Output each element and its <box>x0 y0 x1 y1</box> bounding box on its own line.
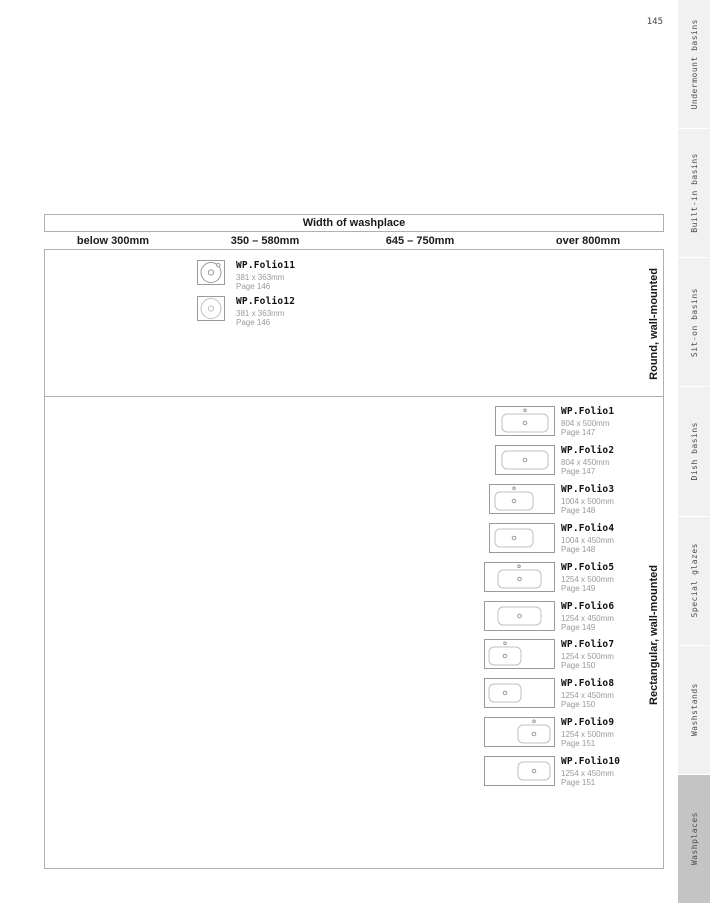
product-size: 804 x 500mm <box>561 419 614 429</box>
product-name: WP.Folio7 <box>561 639 614 651</box>
product-name: WP.Folio9 <box>561 717 614 729</box>
column-header: 350 – 580mm <box>231 235 300 247</box>
round-basin-with-tap-icon <box>197 260 225 290</box>
product-size: 1254 x 450mm <box>561 691 614 701</box>
product-info: WP.Folio61254 x 450mmPage 149 <box>561 601 614 633</box>
product-info: WP.Folio81254 x 450mmPage 150 <box>561 678 614 710</box>
column-header: 645 – 750mm <box>386 235 455 247</box>
product-name: WP.Folio4 <box>561 523 614 535</box>
product-name: WP.Folio2 <box>561 445 614 457</box>
tab-sit-on-basins[interactable]: Sit-on basins <box>678 258 710 387</box>
rect-basin-center-tap-icon <box>495 406 555 441</box>
tab-washplaces[interactable]: Washplaces <box>678 775 710 903</box>
product-info: WP.Folio41004 x 450mmPage 148 <box>561 523 614 555</box>
product-page-ref: Page 149 <box>561 584 614 594</box>
product-name: WP.Folio1 <box>561 406 614 418</box>
tab-label: Dish basins <box>690 422 699 480</box>
section-round-wall-mounted: Round, wall-mounted WP.Folio11381 x 363m… <box>44 249 664 397</box>
washplace-width-table: Width of washplace below 300mm350 – 580m… <box>44 214 664 869</box>
wide-basin-left-icon <box>484 678 555 713</box>
tab-dish-basins[interactable]: Dish basins <box>678 387 710 516</box>
product-page-ref: Page 146 <box>236 318 295 328</box>
tab-special-glazes[interactable]: Special glazes <box>678 517 710 646</box>
catalog-page: 145 Width of washplace below 300mm350 – … <box>0 0 710 903</box>
product-name: WP.Folio11 <box>236 260 295 272</box>
tab-label: Washplaces <box>690 812 699 865</box>
product-info: WP.Folio101254 x 450mmPage 151 <box>561 756 620 788</box>
product-size: 1254 x 500mm <box>561 652 614 662</box>
tab-label: Special glazes <box>690 543 699 617</box>
wide-basin-right-icon <box>484 756 555 791</box>
column-header-row: below 300mm350 – 580mm645 – 750mmover 80… <box>44 232 664 249</box>
tab-washstands[interactable]: Washstands <box>678 646 710 775</box>
product-size: 1254 x 500mm <box>561 575 614 585</box>
section-label-round: Round, wall-mounted <box>648 268 660 380</box>
product-info: WP.Folio12381 x 363mmPage 146 <box>236 296 295 328</box>
product-size: 1254 x 450mm <box>561 769 620 779</box>
page-number: 145 <box>647 17 663 27</box>
tab-label: Built-in basins <box>690 153 699 233</box>
wide-basin-right-tap-icon <box>484 717 555 752</box>
product-info: WP.Folio91254 x 500mmPage 151 <box>561 717 614 749</box>
wide-basin-center-icon <box>484 601 555 636</box>
product-name: WP.Folio12 <box>236 296 295 308</box>
tab-label: Undermount basins <box>690 19 699 109</box>
product-name: WP.Folio6 <box>561 601 614 613</box>
product-page-ref: Page 149 <box>561 623 614 633</box>
section-rectangular-wall-mounted: Rectangular, wall-mounted WP.Folio1804 x… <box>44 396 664 869</box>
product-name: WP.Folio10 <box>561 756 620 768</box>
product-size: 1004 x 450mm <box>561 536 614 546</box>
tab-undermount-basins[interactable]: Undermount basins <box>678 0 710 129</box>
column-header: over 800mm <box>556 235 620 247</box>
product-page-ref: Page 147 <box>561 428 614 438</box>
product-page-ref: Page 150 <box>561 661 614 671</box>
product-info: WP.Folio2804 x 450mmPage 147 <box>561 445 614 477</box>
category-tab-bar: Undermount basinsBuilt-in basinsSit-on b… <box>678 0 710 903</box>
product-page-ref: Page 148 <box>561 545 614 555</box>
product-size: 381 x 363mm <box>236 273 295 283</box>
product-info: WP.Folio51254 x 500mmPage 149 <box>561 562 614 594</box>
wide-basin-center-tap-icon <box>484 562 555 597</box>
tab-label: Washstands <box>690 683 699 736</box>
wide-basin-left-tap-icon <box>484 639 555 674</box>
product-page-ref: Page 146 <box>236 282 295 292</box>
column-header: below 300mm <box>77 235 149 247</box>
rect-basin-left-icon <box>489 523 555 558</box>
product-size: 1004 x 500mm <box>561 497 614 507</box>
product-page-ref: Page 151 <box>561 739 614 749</box>
product-size: 381 x 363mm <box>236 309 295 319</box>
product-page-ref: Page 150 <box>561 700 614 710</box>
tab-built-in-basins[interactable]: Built-in basins <box>678 129 710 258</box>
product-info: WP.Folio31004 x 500mmPage 148 <box>561 484 614 516</box>
product-name: WP.Folio8 <box>561 678 614 690</box>
product-info: WP.Folio1804 x 500mmPage 147 <box>561 406 614 438</box>
product-page-ref: Page 151 <box>561 778 620 788</box>
product-size: 1254 x 500mm <box>561 730 614 740</box>
table-title: Width of washplace <box>44 214 664 232</box>
product-name: WP.Folio5 <box>561 562 614 574</box>
product-page-ref: Page 147 <box>561 467 614 477</box>
tab-label: Sit-on basins <box>690 288 699 357</box>
product-page-ref: Page 148 <box>561 506 614 516</box>
round-basin-icon <box>197 296 225 326</box>
product-info: WP.Folio71254 x 500mmPage 150 <box>561 639 614 671</box>
rect-basin-left-tap-icon <box>489 484 555 519</box>
section-label-rectangular: Rectangular, wall-mounted <box>648 565 660 705</box>
product-size: 804 x 450mm <box>561 458 614 468</box>
product-name: WP.Folio3 <box>561 484 614 496</box>
product-size: 1254 x 450mm <box>561 614 614 624</box>
rect-basin-center-icon <box>495 445 555 480</box>
product-info: WP.Folio11381 x 363mmPage 146 <box>236 260 295 292</box>
